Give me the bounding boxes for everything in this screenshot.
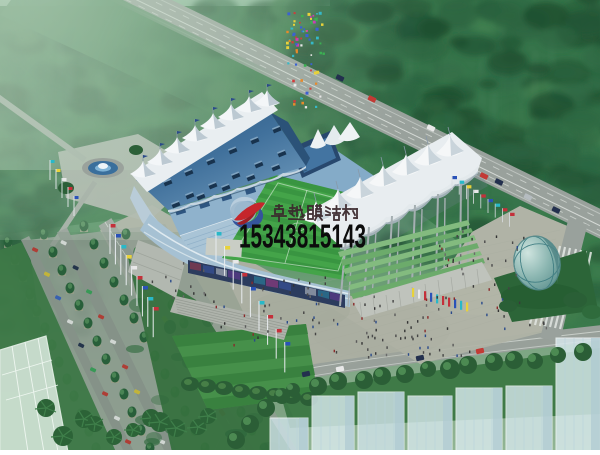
svg-text:15343815143: 15343815143	[239, 218, 366, 255]
